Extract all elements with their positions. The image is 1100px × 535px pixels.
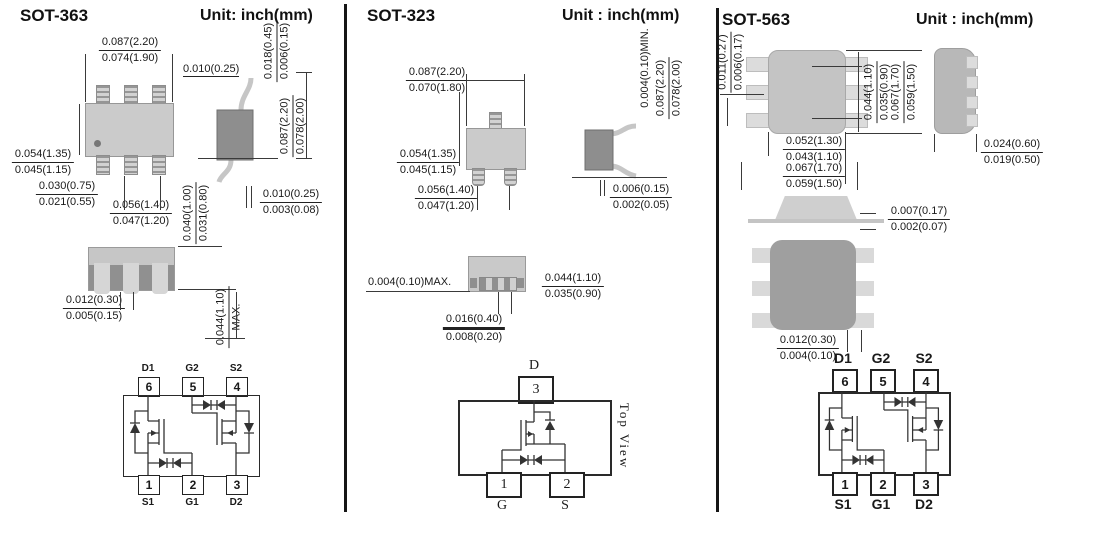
sot563-side-pad xyxy=(966,56,978,69)
sot563-pin-name: S2 xyxy=(915,350,932,366)
sot363-bottom-pad xyxy=(123,263,139,294)
sot563-circuit-schematic xyxy=(818,392,947,472)
sot563-side-pad xyxy=(966,114,978,127)
sot363-pin1-dot xyxy=(94,140,101,147)
package-outline-sheet: SOT-363 Unit: inch(mm) 0.087(2.20) 0.074… xyxy=(0,0,1100,535)
dim-line xyxy=(124,176,125,210)
sot363-pin-box: 6 xyxy=(138,377,160,397)
sot323-dim-width: 0.087(2.20) 0.070(1.80) xyxy=(406,66,468,95)
sot563-pin-box: 5 xyxy=(870,369,896,393)
dim-line xyxy=(768,132,769,156)
dim-line xyxy=(860,213,876,214)
sot323-pin-box: 1 xyxy=(486,472,522,498)
dim-line xyxy=(85,54,86,102)
dim-line xyxy=(459,92,460,166)
dim-line xyxy=(133,292,134,310)
sot363-dim-standoff: 0.010(0.25) 0.003(0.08) xyxy=(260,188,322,217)
sot363-lead-top-1 xyxy=(96,85,110,105)
sot363-pin-box: 4 xyxy=(226,377,248,397)
dim-line xyxy=(498,292,499,314)
sot323-pin-box: 2 xyxy=(549,472,585,498)
sot363-dim-body-thickness: 0.040(1.00) 0.031(0.80) xyxy=(182,182,211,244)
dim-line xyxy=(812,66,862,67)
sot563-dim-body-width: 0.052(1.30) 0.043(1.10) xyxy=(783,135,845,164)
sot363-lead-top-3 xyxy=(152,85,166,105)
dim-line xyxy=(296,158,312,159)
sot563-dim-lead-thickness: 0.007(0.17) 0.002(0.07) xyxy=(888,205,950,234)
sot363-unit: Unit: inch(mm) xyxy=(200,7,313,25)
sot323-pin-name: D xyxy=(529,358,539,374)
sot363-dim-pitch: 0.056(1.40) 0.047(1.20) xyxy=(110,199,172,228)
dim-line xyxy=(858,52,859,132)
sot323-package-body xyxy=(466,128,526,170)
sot563-pin-box: 1 xyxy=(832,472,858,496)
sot323-lead-bot-2 xyxy=(504,168,517,186)
seating-plane-line xyxy=(366,291,470,292)
sot323-pin-name: G xyxy=(497,498,507,514)
sot363-lead-bot-3 xyxy=(152,155,166,175)
sot563-dim-bottom-pad: 0.012(0.30) 0.004(0.10) xyxy=(777,334,839,363)
dim-line xyxy=(524,74,525,126)
sot563-bottom-view-body xyxy=(770,240,856,330)
sot323-unit: Unit : inch(mm) xyxy=(562,7,679,25)
dim-line xyxy=(720,94,764,95)
sot563-profile-body xyxy=(775,196,857,220)
sot563-package-body xyxy=(768,50,846,134)
dim-line xyxy=(466,74,467,126)
sot323-bottom-pads xyxy=(479,277,517,291)
dim-line xyxy=(727,98,728,126)
sot363-dim-side-height: 0.087(2.20) 0.078(2.00) xyxy=(279,95,308,157)
sot363-pin-box: 5 xyxy=(182,377,204,397)
dim-line xyxy=(509,186,510,210)
sot563-side-pad xyxy=(966,96,978,109)
sot563-pin-box: 2 xyxy=(870,472,896,496)
sot323-bottom-side-pad xyxy=(517,278,524,288)
dim-line xyxy=(477,186,478,210)
sot363-pin-name: D1 xyxy=(142,363,155,374)
panel-divider xyxy=(344,4,347,512)
sot563-pin-box: 6 xyxy=(832,369,858,393)
sot363-circuit-schematic xyxy=(123,395,258,475)
dim-line xyxy=(246,186,247,208)
dim-line xyxy=(846,50,922,51)
sot563-pin-name: D2 xyxy=(915,496,933,512)
sot363-lead-bot-1 xyxy=(96,155,110,175)
sot363-dim-foot: 0.010(0.25) xyxy=(183,63,239,77)
sot563-side-pad xyxy=(966,76,978,89)
dim-line xyxy=(236,292,237,338)
dim-line xyxy=(511,292,512,314)
sot323-circuit-schematic xyxy=(458,400,608,472)
sot323-side-view xyxy=(580,120,655,190)
sot323-dim-height: 0.054(1.35) 0.045(1.15) xyxy=(397,148,459,177)
dim-line xyxy=(600,180,601,196)
dim-line xyxy=(846,133,922,134)
sot363-lead-bot-2 xyxy=(124,155,138,175)
sot323-dim-pitch: 0.056(1.40) 0.047(1.20) xyxy=(415,184,477,213)
sot363-pin-box: 3 xyxy=(226,475,248,495)
dim-line xyxy=(847,330,848,352)
sot363-dim-lead-thickness: 0.018(0.45) 0.006(0.15) xyxy=(263,20,292,82)
sot563-dim-outer: 0.067(1.70) 0.059(1.50) xyxy=(890,61,919,123)
sot323-dim-bottom-height: 0.044(1.10) 0.035(0.90) xyxy=(542,272,604,301)
sot563-dim-total-width: 0.067(1.70) 0.059(1.50) xyxy=(783,162,845,191)
dim-line xyxy=(845,132,846,184)
dim-line xyxy=(741,162,742,190)
dim-line xyxy=(306,72,307,158)
dim-line xyxy=(861,330,862,352)
sot563-pin-box: 3 xyxy=(913,472,939,496)
sot563-pin-box: 4 xyxy=(913,369,939,393)
sot363-dim-height: 0.054(1.35) 0.045(1.15) xyxy=(12,148,74,177)
sot363-pin-name: S2 xyxy=(230,363,242,374)
dim-line xyxy=(172,54,173,102)
sot563-dim-pad-extension: 0.011(0.27) 0.006(0.17) xyxy=(717,31,746,92)
sot323-title: SOT-323 xyxy=(367,6,435,26)
dim-line xyxy=(296,72,312,73)
sot563-pin-name: G1 xyxy=(872,496,891,512)
sot363-package-body xyxy=(85,103,174,157)
sot363-pin-box: 2 xyxy=(182,475,204,495)
sot363-pin-name: S1 xyxy=(142,497,154,508)
dim-line xyxy=(79,104,80,155)
dim-line xyxy=(120,292,121,310)
sot363-bottom-pad xyxy=(152,263,168,294)
sot323-pin-name: S xyxy=(561,498,569,514)
sot363-title: SOT-363 xyxy=(20,6,88,26)
dim-line xyxy=(976,134,977,152)
sot563-dim-inner: 0.044(1.10) 0.035(0.90) xyxy=(863,61,892,123)
sot323-dim-max-clearance: 0.004(0.10)MAX. xyxy=(368,276,451,288)
dim-line xyxy=(860,229,876,230)
sot363-dim-lead-width: 0.030(0.75) 0.021(0.55) xyxy=(36,180,98,209)
seating-plane-line xyxy=(572,177,667,178)
sot363-pin-box: 1 xyxy=(138,475,160,495)
sot323-dim-pad-width: 0.016(0.40) 0.008(0.20) xyxy=(443,313,505,344)
sot323-dim-min-clearance: 0.004(0.10)MIN. xyxy=(639,28,651,107)
dim-line xyxy=(604,180,605,196)
sot363-bottom-pad xyxy=(94,263,110,294)
sot363-pin-name: G1 xyxy=(185,497,198,508)
sot323-bottom-view-body xyxy=(468,256,526,292)
dim-line xyxy=(934,134,935,152)
sot323-bottom-side-pad xyxy=(470,278,477,288)
sot363-dim-width: 0.087(2.20) 0.074(1.90) xyxy=(99,36,161,65)
dim-line xyxy=(160,176,161,210)
dim-line xyxy=(251,186,252,208)
sot363-bottom-view-body xyxy=(88,247,175,291)
sot363-pin-name: G2 xyxy=(185,363,198,374)
sot563-pin-name: S1 xyxy=(834,496,851,512)
dim-line xyxy=(178,246,222,247)
sot323-top-view-label: Top View xyxy=(616,403,632,469)
dim-line xyxy=(205,338,245,339)
sot563-pin-name: D1 xyxy=(834,350,852,366)
sot563-unit: Unit : inch(mm) xyxy=(916,11,1033,29)
sot363-pin-name: D2 xyxy=(230,497,243,508)
sot323-dim-side-height: 0.087(2.20) 0.078(2.00) xyxy=(655,57,684,119)
dim-line xyxy=(467,80,524,81)
sot363-lead-top-2 xyxy=(124,85,138,105)
sot563-title: SOT-563 xyxy=(722,10,790,30)
sot563-pin-name: G2 xyxy=(872,350,891,366)
sot563-dim-depth: 0.024(0.60) 0.019(0.50) xyxy=(981,138,1043,167)
sot363-dim-pad-width: 0.012(0.30) 0.005(0.15) xyxy=(63,294,125,323)
sot323-dim-standoff: 0.006(0.15) 0.002(0.05) xyxy=(610,183,672,212)
sot563-profile-leads xyxy=(748,219,884,223)
dim-line xyxy=(857,162,858,190)
dim-line xyxy=(812,118,862,119)
seating-plane-line xyxy=(198,158,278,159)
